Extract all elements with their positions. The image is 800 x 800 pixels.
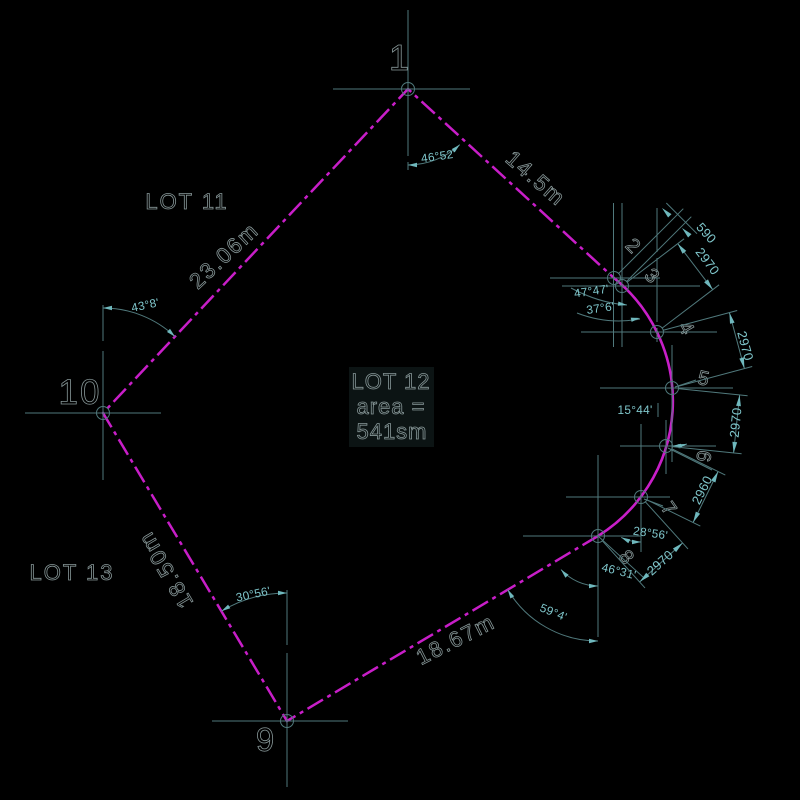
svg-text:2970: 2970 bbox=[727, 407, 745, 439]
svg-text:10: 10 bbox=[59, 373, 102, 412]
svg-text:1: 1 bbox=[389, 37, 411, 78]
svg-text:LOT 11: LOT 11 bbox=[145, 189, 228, 214]
svg-text:area =: area = bbox=[357, 394, 426, 419]
svg-text:LOT 12: LOT 12 bbox=[352, 369, 431, 394]
svg-text:LOT 13: LOT 13 bbox=[30, 560, 115, 585]
svg-text:15°44': 15°44' bbox=[617, 403, 652, 417]
svg-text:9: 9 bbox=[256, 721, 276, 758]
svg-text:541sm: 541sm bbox=[356, 419, 427, 444]
